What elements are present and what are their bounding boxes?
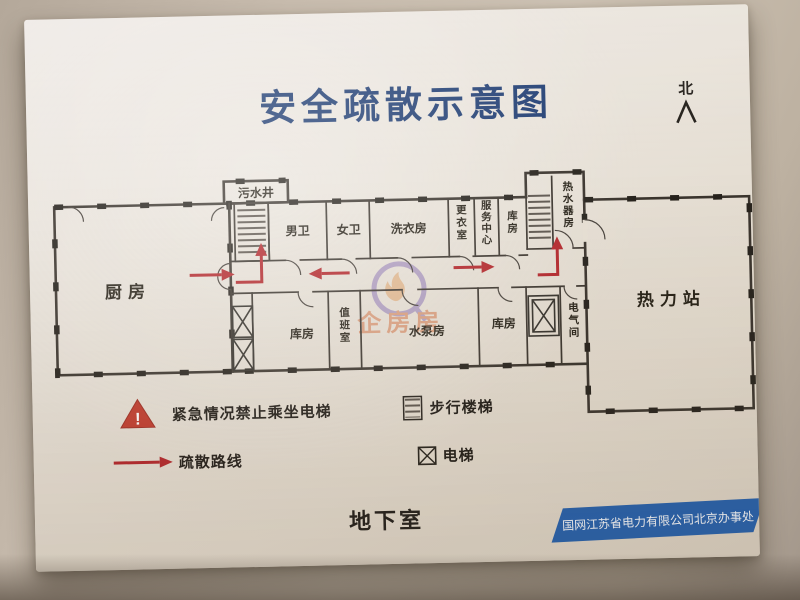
room-label-kufang-right: 库房 [492, 315, 516, 331]
north-compass: 北 [677, 80, 696, 122]
page-title: 安全疏散示意图 [259, 80, 554, 128]
legend-no-elevator-label: 紧急情况禁止乘坐电梯 [172, 402, 332, 423]
legend: ! 紧急情况禁止乘坐电梯 步行楼梯 疏散路线 电梯 [112, 392, 495, 473]
route-arrow-corridor-right [454, 267, 482, 268]
evacuation-sign-poster: 安全疏散示意图 北 企房房 [24, 4, 760, 572]
legend-route-label: 疏散路线 [179, 452, 243, 471]
route-arrow-right-stair [537, 248, 558, 274]
north-arrow-icon [677, 102, 695, 122]
route-arrow-kitchen [190, 275, 222, 276]
route-arrow-icon [114, 462, 160, 463]
north-label: 北 [678, 80, 693, 97]
room-label-kufang-top: 库房 [507, 209, 519, 235]
room-label-reshuiqifang: 热水器房 [561, 180, 574, 229]
interior-walls [229, 176, 591, 372]
elevator-icon-cross [418, 447, 435, 464]
evacuation-diagram-svg: 安全疏散示意图 北 企房房 [24, 4, 760, 572]
legend-item-route: 疏散路线 [114, 452, 243, 473]
room-label-dianqijian: 电气间 [567, 301, 580, 339]
footer: 地下室 国网江苏省电力有限公司北京办事处 [349, 498, 760, 547]
warning-exclamation: ! [135, 410, 141, 429]
legend-item-elevator: 电梯 [418, 446, 474, 465]
room-label-shuibengfang: 水泵房 [409, 323, 445, 339]
room-label-fuwu-zhongxin: 服务中心 [481, 200, 493, 247]
route-arrow-left-stair [235, 255, 262, 283]
route-arrow-corridor-left [322, 273, 350, 274]
room-label-xiyifang: 洗衣房 [391, 220, 427, 236]
room-label-nanwei: 男卫 [286, 224, 310, 239]
legend-item-stairs: 步行楼梯 [403, 395, 493, 420]
room-label-nvwei: 女卫 [337, 222, 361, 238]
room-label-wushuijing: 污水井 [238, 185, 274, 201]
room-label-gengyishi: 更衣室 [456, 204, 468, 241]
staircase-right-icon [539, 195, 540, 243]
watermark-flame-icon [385, 272, 405, 302]
legend-stairs-label: 步行楼梯 [429, 398, 493, 417]
floor-plan: 污水井 男卫 女卫 洗衣房 更衣室 服务中心 库房 热水器房 厨房 热力站 库房… [54, 168, 754, 423]
legend-item-no-elevator: ! 紧急情况禁止乘坐电梯 [120, 395, 332, 429]
room-label-relizhan: 热力站 [637, 288, 706, 310]
floor-label: 地下室 [349, 507, 425, 534]
room-label-chufang: 厨房 [105, 281, 151, 302]
room-label-zhibanshi: 值班室 [339, 306, 351, 344]
legend-elevator-label: 电梯 [442, 446, 474, 465]
room-label-kufang-left: 库房 [290, 326, 314, 342]
